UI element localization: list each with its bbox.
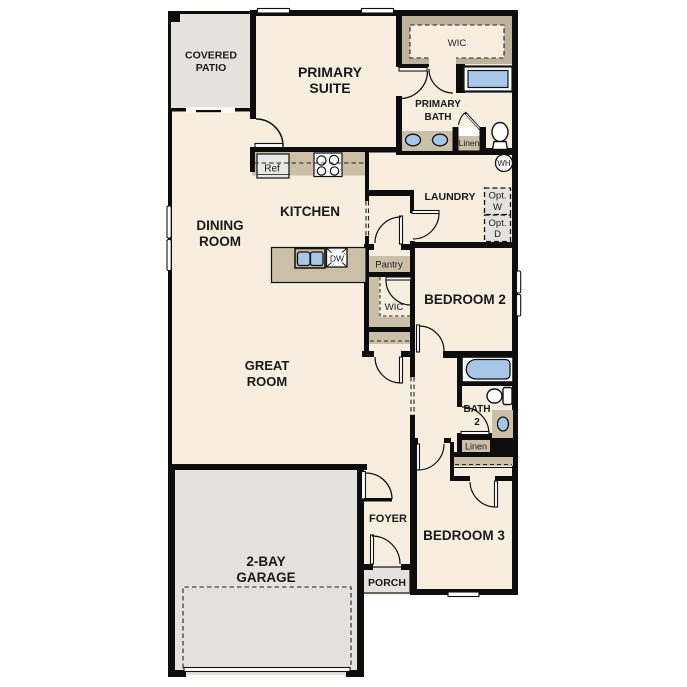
svg-text:PRIMARY: PRIMARY bbox=[415, 99, 461, 110]
svg-text:BEDROOM 2: BEDROOM 2 bbox=[424, 292, 506, 307]
svg-text:PORCH: PORCH bbox=[368, 577, 406, 589]
svg-text:GREAT: GREAT bbox=[245, 358, 290, 373]
svg-text:DW: DW bbox=[330, 254, 344, 264]
svg-text:BEDROOM 3: BEDROOM 3 bbox=[423, 528, 505, 543]
svg-text:Linen: Linen bbox=[465, 442, 487, 452]
svg-text:FOYER: FOYER bbox=[369, 513, 407, 525]
svg-text:WIC: WIC bbox=[448, 38, 467, 49]
svg-text:Pantry: Pantry bbox=[375, 260, 403, 271]
svg-text:W: W bbox=[493, 202, 502, 213]
svg-text:PATIO: PATIO bbox=[196, 62, 227, 74]
svg-text:WIC: WIC bbox=[385, 302, 404, 313]
svg-text:COVERED: COVERED bbox=[185, 50, 237, 62]
svg-text:BATH: BATH bbox=[424, 112, 451, 123]
svg-text:SUITE: SUITE bbox=[309, 80, 350, 96]
svg-text:WH: WH bbox=[497, 159, 511, 168]
svg-text:LAUNDRY: LAUNDRY bbox=[425, 191, 476, 203]
svg-text:PRIMARY: PRIMARY bbox=[298, 64, 363, 80]
svg-text:Opt.: Opt. bbox=[489, 191, 507, 202]
svg-text:2-BAY: 2-BAY bbox=[246, 554, 285, 569]
svg-text:Linen: Linen bbox=[459, 138, 480, 148]
svg-text:ROOM: ROOM bbox=[247, 374, 287, 389]
svg-text:Ref: Ref bbox=[264, 164, 280, 175]
svg-text:D: D bbox=[494, 229, 501, 240]
svg-text:Opt.: Opt. bbox=[489, 218, 507, 229]
svg-text:BATH: BATH bbox=[463, 404, 490, 415]
svg-text:DINING: DINING bbox=[196, 218, 243, 233]
svg-text:GARAGE: GARAGE bbox=[236, 570, 295, 585]
svg-text:KITCHEN: KITCHEN bbox=[280, 204, 340, 219]
svg-text:ROOM: ROOM bbox=[199, 234, 241, 249]
svg-text:2: 2 bbox=[474, 417, 480, 428]
